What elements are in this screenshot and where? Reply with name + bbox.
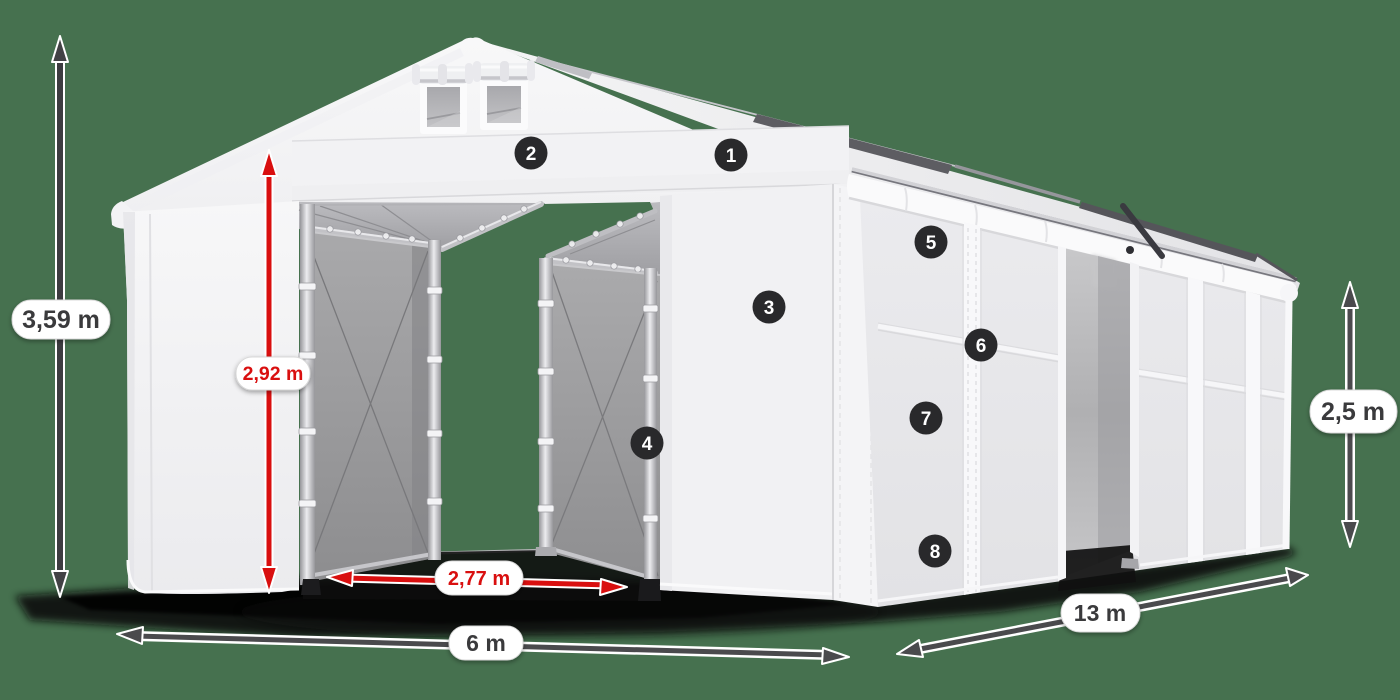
svg-text:4: 4	[642, 434, 653, 455]
svg-text:2,77 m: 2,77 m	[448, 568, 510, 590]
svg-text:2,5 m: 2,5 m	[1321, 398, 1385, 426]
svg-text:7: 7	[921, 409, 932, 430]
svg-text:3,59 m: 3,59 m	[22, 306, 100, 334]
svg-text:6: 6	[976, 336, 987, 357]
svg-text:2: 2	[526, 144, 537, 165]
svg-text:5: 5	[926, 233, 937, 254]
svg-text:1: 1	[726, 146, 737, 167]
svg-text:8: 8	[930, 542, 941, 563]
svg-text:2,92 m: 2,92 m	[243, 363, 304, 385]
svg-text:13 m: 13 m	[1074, 600, 1126, 626]
svg-text:6 m: 6 m	[466, 630, 506, 656]
svg-text:3: 3	[764, 298, 775, 319]
